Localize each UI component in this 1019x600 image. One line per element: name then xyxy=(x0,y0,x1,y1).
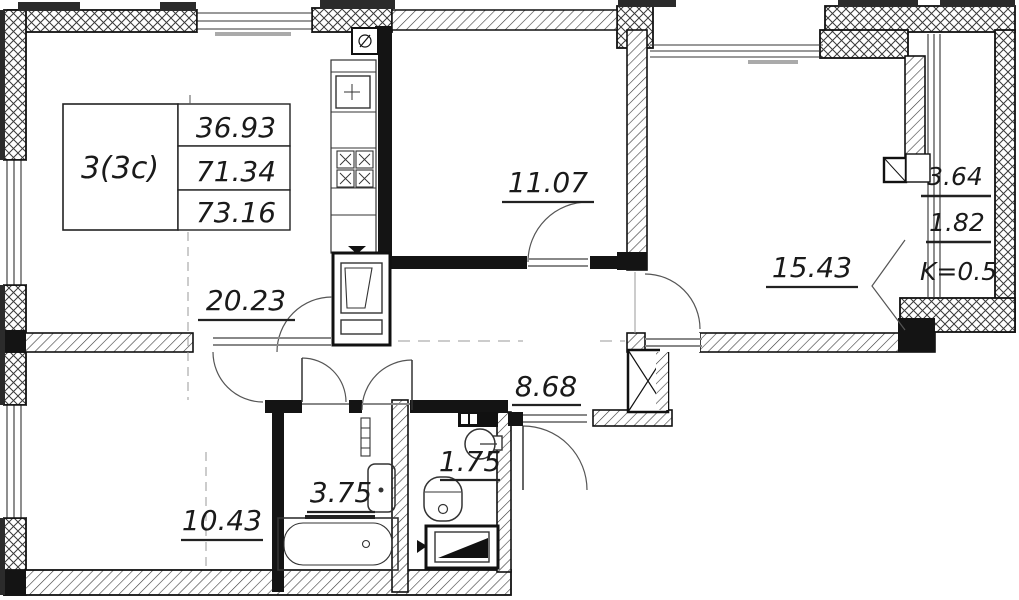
label-balcony-area: 3.64 xyxy=(927,162,983,191)
window-left-bottom xyxy=(4,405,26,518)
label-balcony-coefficient: K=0.5 xyxy=(920,257,997,286)
window-top xyxy=(197,10,312,36)
label-bedroom-bottom: 10.43 xyxy=(182,504,262,537)
fridge-icon xyxy=(333,246,390,345)
balcony-door-jambs xyxy=(884,154,930,182)
stamp-type: 3(3c) xyxy=(81,151,159,186)
kitchen-counter xyxy=(331,60,376,253)
door-arc-bedroom-bottom xyxy=(213,352,263,402)
apartment-stamp: 3(3c) 36.93 71.34 73.16 xyxy=(63,95,290,230)
window-top-right xyxy=(650,45,823,64)
bathtub-icon xyxy=(278,515,398,570)
floor-plan-drawing: 3(3c) 36.93 71.34 73.16 20.23 11.07 15.4… xyxy=(0,0,1019,600)
label-kitchen-living: 20.23 xyxy=(206,284,286,317)
stamp-apartment-area: 71.34 xyxy=(196,155,276,188)
label-balcony-reduced: 1.82 xyxy=(929,208,985,237)
opening-room-right xyxy=(660,333,700,352)
stamp-living-area: 36.93 xyxy=(196,111,276,144)
door-arc-bedroom-top xyxy=(528,202,588,262)
label-bedroom-top: 11.07 xyxy=(508,166,588,199)
vent-shaft-icon xyxy=(628,350,668,412)
floor-plan: 3(3c) 36.93 71.34 73.16 20.23 11.07 15.4… xyxy=(0,0,1019,600)
toilet-icon xyxy=(424,477,462,521)
door-arc-entrance xyxy=(523,426,587,490)
window-left-top xyxy=(4,160,26,285)
label-room-right: 15.43 xyxy=(772,251,852,284)
door-arc-room-right xyxy=(645,274,700,329)
wc-vent-icon xyxy=(458,412,498,427)
towel-radiator-icon xyxy=(361,418,370,456)
label-bathroom: 3.75 xyxy=(310,476,372,509)
label-wc: 1.75 xyxy=(439,445,501,478)
label-hall: 8.68 xyxy=(515,370,577,403)
stamp-total-area: 73.16 xyxy=(196,196,276,229)
washing-machine-icon xyxy=(417,526,498,568)
kitchen-vent-icon xyxy=(352,28,378,54)
door-arc-bathroom xyxy=(302,358,346,402)
